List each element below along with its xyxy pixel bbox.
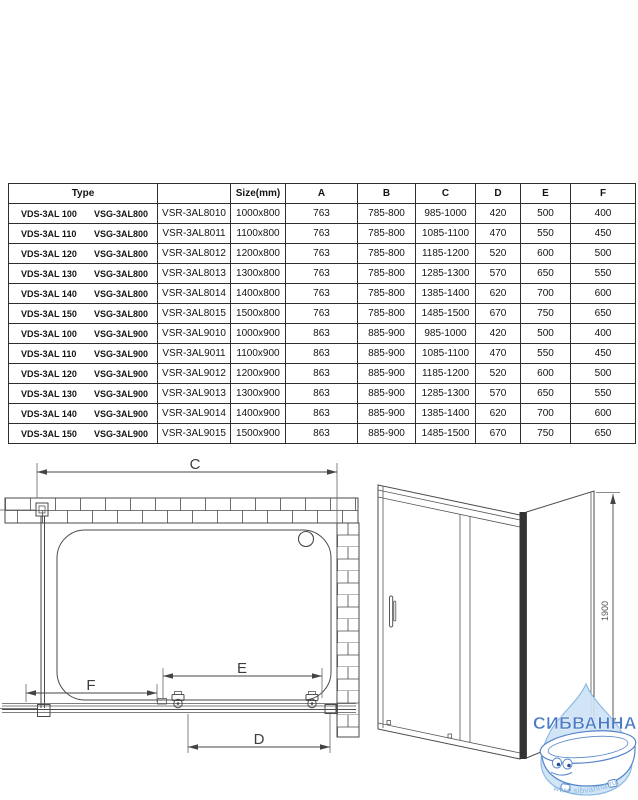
cell-b: 885-900 — [358, 324, 416, 344]
table-row: VDS-3AL 140VSG-3AL800VSR-3AL80141400x800… — [9, 284, 636, 304]
header-e: E — [521, 184, 571, 204]
cell-f: 650 — [571, 304, 636, 324]
plan-view: C — [0, 456, 359, 753]
header-d: D — [476, 184, 521, 204]
type-vsg-label: VSG-3AL900 — [94, 369, 148, 379]
cell-a: 763 — [286, 244, 358, 264]
cell-d: 620 — [476, 404, 521, 424]
dimension-d: D — [188, 714, 330, 753]
cell-e: 700 — [521, 284, 571, 304]
dim-d-label: D — [254, 731, 265, 748]
dim-f-label: F — [86, 677, 95, 694]
type-vds-label: VDS-3AL 110 — [21, 349, 76, 359]
cell-size: 1400x900 — [231, 404, 286, 424]
table-row: VDS-3AL 150VSG-3AL900VSR-3AL90151500x900… — [9, 424, 636, 444]
cell-c: 1385-1400 — [416, 404, 476, 424]
cell-model: VSR-3AL8013 — [158, 264, 231, 284]
table-row: VDS-3AL 110VSG-3AL900VSR-3AL90111100x900… — [9, 344, 636, 364]
cell-size: 1000x900 — [231, 324, 286, 344]
header-type: Type — [9, 184, 158, 204]
cell-f: 400 — [571, 324, 636, 344]
cell-type: VDS-3AL 120VSG-3AL900 — [9, 364, 158, 384]
cell-model: VSR-3AL8015 — [158, 304, 231, 324]
cell-c: 1285-1300 — [416, 384, 476, 404]
table-row: VDS-3AL 110VSG-3AL800VSR-3AL80111100x800… — [9, 224, 636, 244]
type-vds-label: VDS-3AL 130 — [21, 389, 77, 399]
cell-model: VSR-3AL8012 — [158, 244, 231, 264]
cell-c: 1485-1500 — [416, 304, 476, 324]
cell-f: 450 — [571, 344, 636, 364]
cell-a: 863 — [286, 424, 358, 444]
type-vsg-label: VSG-3AL900 — [94, 409, 148, 419]
cell-f: 600 — [571, 284, 636, 304]
dim-c-label: C — [190, 456, 201, 473]
cell-f: 600 — [571, 404, 636, 424]
cell-size: 1300x800 — [231, 264, 286, 284]
header-c: C — [416, 184, 476, 204]
dimension-height: 1900 — [596, 493, 620, 731]
type-vsg-label: VSG-3AL800 — [94, 249, 148, 259]
cell-c: 1085-1100 — [416, 224, 476, 244]
spec-table-body: VDS-3AL 100VSG-3AL800VSR-3AL80101000x800… — [9, 204, 636, 444]
cell-type: VDS-3AL 150VSG-3AL800 — [9, 304, 158, 324]
table-row: VDS-3AL 120VSG-3AL800VSR-3AL80121200x800… — [9, 244, 636, 264]
cell-f: 650 — [571, 424, 636, 444]
cell-a: 863 — [286, 404, 358, 424]
cell-type: VDS-3AL 130VSG-3AL900 — [9, 384, 158, 404]
cell-d: 520 — [476, 244, 521, 264]
type-vsg-label: VSG-3AL800 — [94, 229, 148, 239]
cell-e: 550 — [521, 224, 571, 244]
cell-model: VSR-3AL9011 — [158, 344, 231, 364]
cell-a: 763 — [286, 224, 358, 244]
cell-a: 863 — [286, 364, 358, 384]
type-vsg-label: VSG-3AL800 — [94, 209, 148, 219]
cell-size: 1100x800 — [231, 224, 286, 244]
cell-model: VSR-3AL9010 — [158, 324, 231, 344]
cell-f: 550 — [571, 264, 636, 284]
cell-model: VSR-3AL8014 — [158, 284, 231, 304]
door-handle — [390, 596, 396, 627]
cell-e: 700 — [521, 404, 571, 424]
cell-a: 863 — [286, 324, 358, 344]
cell-f: 500 — [571, 364, 636, 384]
table-row: VDS-3AL 130VSG-3AL900VSR-3AL90131300x900… — [9, 384, 636, 404]
header-size: Size(mm) — [231, 184, 286, 204]
cell-size: 1400x800 — [231, 284, 286, 304]
cell-c: 1185-1200 — [416, 364, 476, 384]
cell-c: 1185-1200 — [416, 244, 476, 264]
cell-c: 1085-1100 — [416, 344, 476, 364]
table-row: VDS-3AL 150VSG-3AL800VSR-3AL80151500x800… — [9, 304, 636, 324]
cell-d: 570 — [476, 384, 521, 404]
type-vds-label: VDS-3AL 140 — [21, 409, 77, 419]
cell-a: 863 — [286, 344, 358, 364]
table-row: VDS-3AL 120VSG-3AL900VSR-3AL90121200x900… — [9, 364, 636, 384]
technical-drawing: C — [0, 450, 638, 800]
cell-e: 600 — [521, 244, 571, 264]
cell-type: VDS-3AL 120VSG-3AL800 — [9, 244, 158, 264]
cell-b: 885-900 — [358, 424, 416, 444]
cell-size: 1300x900 — [231, 384, 286, 404]
type-vsg-label: VSG-3AL900 — [94, 429, 148, 439]
cell-size: 1500x900 — [231, 424, 286, 444]
table-row: VDS-3AL 140VSG-3AL900VSR-3AL90141400x900… — [9, 404, 636, 424]
cell-c: 1385-1400 — [416, 284, 476, 304]
cell-b: 785-800 — [358, 304, 416, 324]
table-row: VDS-3AL 100VSG-3AL800VSR-3AL80101000x800… — [9, 204, 636, 224]
cell-model: VSR-3AL8010 — [158, 204, 231, 224]
cell-type: VDS-3AL 140VSG-3AL900 — [9, 404, 158, 424]
cell-b: 785-800 — [358, 284, 416, 304]
cell-b: 785-800 — [358, 264, 416, 284]
cell-b: 785-800 — [358, 244, 416, 264]
header-model — [158, 184, 231, 204]
table-row: VDS-3AL 100VSG-3AL900VSR-3AL90101000x900… — [9, 324, 636, 344]
cell-type: VDS-3AL 100VSG-3AL800 — [9, 204, 158, 224]
dimension-e: E — [163, 660, 322, 698]
type-vsg-label: VSG-3AL900 — [94, 349, 148, 359]
cell-type: VDS-3AL 110VSG-3AL800 — [9, 224, 158, 244]
table-row: VDS-3AL 130VSG-3AL800VSR-3AL80131300x800… — [9, 264, 636, 284]
cell-f: 550 — [571, 384, 636, 404]
cell-e: 500 — [521, 204, 571, 224]
cell-e: 550 — [521, 344, 571, 364]
cell-e: 650 — [521, 264, 571, 284]
cell-model: VSR-3AL9013 — [158, 384, 231, 404]
cell-b: 785-800 — [358, 224, 416, 244]
cell-type: VDS-3AL 140VSG-3AL800 — [9, 284, 158, 304]
cell-size: 1200x800 — [231, 244, 286, 264]
cell-b: 785-800 — [358, 204, 416, 224]
cell-a: 763 — [286, 304, 358, 324]
cell-a: 763 — [286, 264, 358, 284]
type-vds-label: VDS-3AL 150 — [21, 309, 77, 319]
type-vsg-label: VSG-3AL800 — [94, 309, 148, 319]
type-vds-label: VDS-3AL 130 — [21, 269, 77, 279]
corner-post — [520, 512, 527, 759]
watermark-brand: СИБВАННА — [533, 713, 637, 733]
table-header-row: Type Size(mm) A B C D E F — [9, 184, 636, 204]
wall-top — [5, 498, 358, 523]
cell-e: 750 — [521, 424, 571, 444]
cell-a: 863 — [286, 384, 358, 404]
cell-model: VSR-3AL9014 — [158, 404, 231, 424]
cell-b: 885-900 — [358, 344, 416, 364]
cell-e: 750 — [521, 304, 571, 324]
cell-c: 1285-1300 — [416, 264, 476, 284]
cell-type: VDS-3AL 150VSG-3AL900 — [9, 424, 158, 444]
spec-table: Type Size(mm) A B C D E F VDS-3AL 100VSG… — [8, 183, 636, 444]
cell-d: 620 — [476, 284, 521, 304]
shower-tray — [57, 530, 331, 700]
cell-d: 470 — [476, 344, 521, 364]
cell-c: 985-1000 — [416, 204, 476, 224]
cell-type: VDS-3AL 110VSG-3AL900 — [9, 344, 158, 364]
cell-size: 1200x900 — [231, 364, 286, 384]
type-vds-label: VDS-3AL 120 — [21, 369, 77, 379]
type-vds-label: VDS-3AL 150 — [21, 429, 77, 439]
type-vds-label: VDS-3AL 120 — [21, 249, 77, 259]
spec-sheet: Type Size(mm) A B C D E F VDS-3AL 100VSG… — [0, 0, 638, 800]
cell-d: 420 — [476, 324, 521, 344]
cell-c: 985-1000 — [416, 324, 476, 344]
cell-size: 1500x800 — [231, 304, 286, 324]
type-vds-label: VDS-3AL 100 — [21, 329, 77, 339]
cell-d: 670 — [476, 304, 521, 324]
type-vds-label: VDS-3AL 110 — [21, 229, 76, 239]
cell-type: VDS-3AL 130VSG-3AL800 — [9, 264, 158, 284]
wall-right — [337, 523, 359, 737]
height-label: 1900 — [600, 601, 610, 621]
cell-f: 450 — [571, 224, 636, 244]
cell-size: 1100x900 — [231, 344, 286, 364]
type-vsg-label: VSG-3AL800 — [94, 269, 148, 279]
type-vsg-label: VSG-3AL900 — [94, 389, 148, 399]
type-vds-label: VDS-3AL 140 — [21, 289, 77, 299]
cell-d: 570 — [476, 264, 521, 284]
header-a: A — [286, 184, 358, 204]
cell-model: VSR-3AL8011 — [158, 224, 231, 244]
dimension-f: F — [26, 677, 157, 702]
cell-b: 885-900 — [358, 364, 416, 384]
header-f: F — [571, 184, 636, 204]
side-panel-plan — [0, 503, 48, 708]
cell-e: 600 — [521, 364, 571, 384]
dim-e-label: E — [237, 660, 247, 677]
cell-e: 500 — [521, 324, 571, 344]
cell-d: 470 — [476, 224, 521, 244]
cell-a: 763 — [286, 204, 358, 224]
cell-d: 420 — [476, 204, 521, 224]
cell-d: 670 — [476, 424, 521, 444]
watermark: СИБВАННА www.sibvanna.ru — [533, 684, 637, 795]
cell-f: 400 — [571, 204, 636, 224]
cell-model: VSR-3AL9015 — [158, 424, 231, 444]
cell-c: 1485-1500 — [416, 424, 476, 444]
cell-model: VSR-3AL9012 — [158, 364, 231, 384]
type-vsg-label: VSG-3AL800 — [94, 289, 148, 299]
cell-a: 763 — [286, 284, 358, 304]
cell-e: 650 — [521, 384, 571, 404]
drain-circle — [299, 532, 314, 547]
type-vsg-label: VSG-3AL900 — [94, 329, 148, 339]
cell-d: 520 — [476, 364, 521, 384]
cell-size: 1000x800 — [231, 204, 286, 224]
cell-type: VDS-3AL 100VSG-3AL900 — [9, 324, 158, 344]
type-vds-label: VDS-3AL 100 — [21, 209, 77, 219]
header-b: B — [358, 184, 416, 204]
cell-f: 500 — [571, 244, 636, 264]
cell-b: 885-900 — [358, 384, 416, 404]
cell-b: 885-900 — [358, 404, 416, 424]
